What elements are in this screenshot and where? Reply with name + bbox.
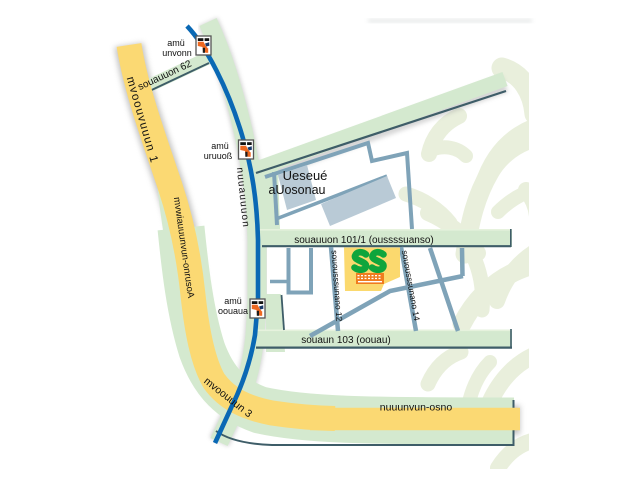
svg-text:souaun 103 (oouau): souaun 103 (oouau) (301, 335, 391, 346)
svg-text:unvonn: unvonn (162, 48, 192, 58)
svg-text:aUosonau: aUosonau (269, 183, 326, 197)
svg-text:uruuoß: uruuoß (204, 151, 233, 161)
svg-text:oouaua: oouaua (218, 306, 248, 316)
svg-text:Ueseué: Ueseué (283, 168, 328, 183)
svg-text:amü: amü (224, 296, 242, 306)
svg-text:amü: amü (167, 38, 185, 48)
svg-text:amü: amü (211, 141, 229, 151)
svg-text:nuuunvun-osno: nuuunvun-osno (380, 402, 453, 414)
svg-text:souauuon 101/1 (oussssuanso): souauuon 101/1 (oussssuanso) (294, 235, 434, 246)
